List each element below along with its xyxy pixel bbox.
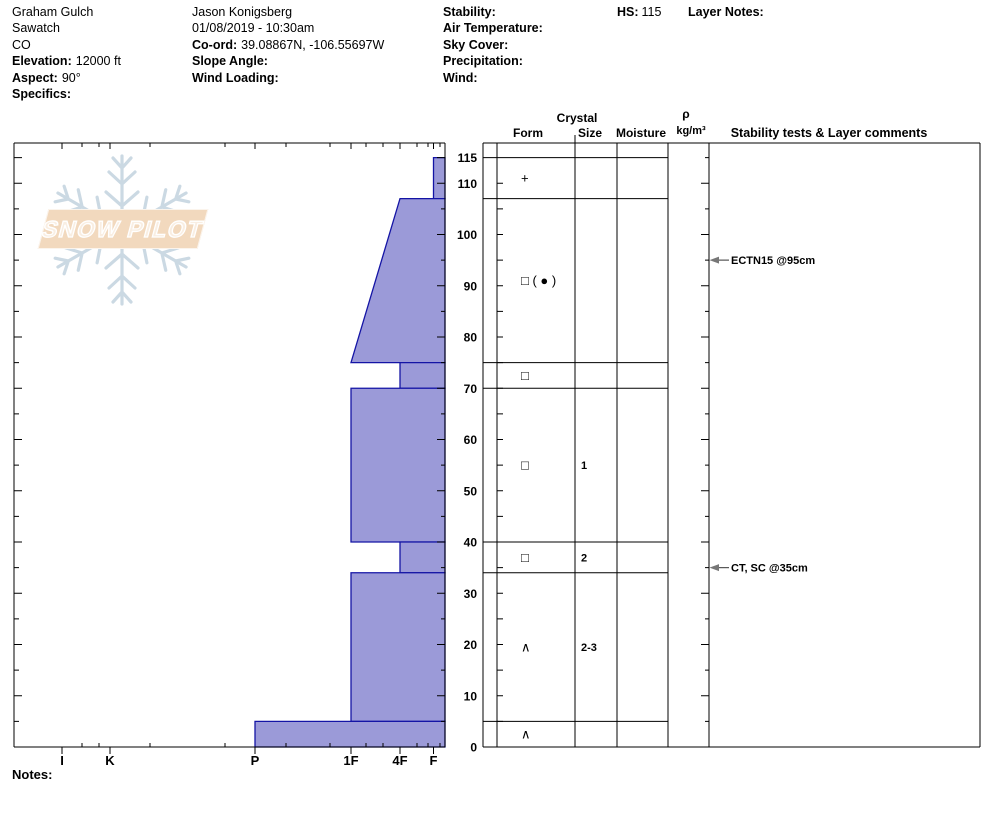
hs-label: HS:	[617, 5, 639, 19]
grain-size-value: 1	[581, 460, 587, 472]
header-observer-column: Jason Konigsberg 01/08/2019 - 10:30am Co…	[192, 4, 384, 86]
air-temperature-row: Air Temperature:	[443, 20, 543, 36]
air-temperature-label: Air Temperature:	[443, 21, 543, 35]
header-layer-notes-column: Layer Notes:	[688, 4, 764, 20]
hardness-tick-label: F	[430, 753, 438, 768]
snow-layer-bar	[351, 573, 445, 722]
coord-value: 39.08867N, -106.55697W	[241, 38, 384, 52]
slope-angle-label: Slope Angle:	[192, 54, 268, 68]
elevation-label: Elevation:	[12, 54, 72, 68]
form-header: Form	[513, 126, 543, 140]
depth-tick-label: 110	[458, 177, 478, 191]
state: CO	[12, 37, 121, 53]
coordinates-row: Co-ord:39.08867N, -106.55697W	[192, 37, 384, 53]
wind-row: Wind:	[443, 70, 543, 86]
depth-tick-label: 0	[470, 741, 477, 755]
wind-loading-row: Wind Loading:	[192, 70, 384, 86]
precipitation-label: Precipitation:	[443, 54, 523, 68]
crystal-form-symbol: □ ( ● )	[521, 273, 556, 288]
depth-tick-label: 30	[464, 587, 478, 601]
depth-tick-label: 100	[457, 228, 477, 242]
datetime-text: 01/08/2019 - 10:30am	[192, 21, 314, 35]
aspect-value: 90°	[62, 71, 81, 85]
hardness-tick-label: I	[60, 753, 64, 768]
crystal-form-symbol: ∧	[521, 727, 531, 742]
depth-tick-label: 40	[464, 536, 478, 550]
hardness-tick-label: 4F	[392, 753, 407, 768]
depth-tick-label: 70	[464, 382, 478, 396]
specifics-label: Specifics:	[12, 87, 71, 101]
hs-value: 115	[642, 5, 662, 19]
specifics-row: Specifics:	[12, 86, 121, 102]
crystal-form-symbol: ∧	[521, 640, 531, 655]
range-text: Sawatch	[12, 21, 60, 35]
snowpit-report-page: Graham Gulch Sawatch CO Elevation:12000 …	[0, 0, 994, 840]
crystal-form-symbol: □	[521, 368, 529, 383]
aspect-label: Aspect:	[12, 71, 58, 85]
sky-cover-label: Sky Cover:	[443, 38, 508, 52]
snow-layer-bar	[400, 542, 445, 573]
layer-notes-label: Layer Notes:	[688, 5, 764, 19]
depth-tick-label: 20	[464, 638, 478, 652]
mountain-range: Sawatch	[12, 20, 121, 36]
density-header: ρ	[682, 107, 689, 121]
stability-test-label: CT, SC @35cm	[731, 563, 808, 575]
depth-tick-label: 90	[464, 279, 478, 293]
precipitation-row: Precipitation:	[443, 53, 543, 69]
snow-profile-chart: 1151101009080706050403020100IKP1F4FF+□ (…	[0, 0, 994, 840]
hardness-tick-label: 1F	[343, 753, 358, 768]
observer-text: Jason Konigsberg	[192, 5, 292, 19]
hs-row: HS:115	[617, 4, 661, 20]
snow-layer-bar	[400, 363, 445, 389]
stability-comments-header: Stability tests & Layer comments	[731, 126, 928, 140]
elevation-value: 12000 ft	[76, 54, 121, 68]
pit-name: Graham Gulch	[12, 4, 121, 20]
observer-name: Jason Konigsberg	[192, 4, 384, 20]
crystal-form-symbol: +	[521, 171, 529, 186]
depth-tick-label: 50	[464, 484, 478, 498]
header-weather-column: Stability: Air Temperature: Sky Cover: P…	[443, 4, 543, 86]
crystal-header: Crystal	[557, 111, 598, 125]
depth-tick-label: 80	[464, 331, 478, 345]
snow-layer-bar	[434, 158, 446, 199]
header-location-column: Graham Gulch Sawatch CO Elevation:12000 …	[12, 4, 121, 102]
density-units: kg/m³	[676, 125, 706, 137]
snow-layer-bar	[351, 388, 445, 542]
crystal-form-symbol: □	[521, 458, 529, 473]
stability-label: Stability:	[443, 5, 496, 19]
depth-tick-label: 10	[464, 689, 478, 703]
wind-label: Wind:	[443, 71, 478, 85]
stability-row: Stability:	[443, 4, 543, 20]
header-hs-column: HS:115	[617, 4, 661, 20]
pit-datetime: 01/08/2019 - 10:30am	[192, 20, 384, 36]
hardness-tick-label: P	[251, 753, 260, 768]
size-header: Size	[578, 126, 602, 140]
grain-size-value: 2	[581, 552, 587, 564]
test-arrow-head	[710, 564, 720, 571]
snow-layer-bar	[351, 199, 445, 363]
stability-test-label: ECTN15 @95cm	[731, 255, 815, 267]
slope-angle-row: Slope Angle:	[192, 53, 384, 69]
depth-tick-label: 60	[464, 433, 478, 447]
depth-tick-label: 115	[458, 151, 478, 165]
wind-loading-label: Wind Loading:	[192, 71, 279, 85]
pit-name-text: Graham Gulch	[12, 5, 93, 19]
test-arrow-head	[710, 257, 720, 264]
layer-notes-row: Layer Notes:	[688, 4, 764, 20]
moisture-header: Moisture	[616, 126, 666, 140]
coord-label: Co-ord:	[192, 38, 237, 52]
state-text: CO	[12, 38, 31, 52]
grain-size-value: 2-3	[581, 642, 597, 654]
crystal-form-symbol: □	[521, 550, 529, 565]
aspect-row: Aspect:90°	[12, 70, 121, 86]
elevation-row: Elevation:12000 ft	[12, 53, 121, 69]
sky-cover-row: Sky Cover:	[443, 37, 543, 53]
hardness-tick-label: K	[105, 753, 115, 768]
